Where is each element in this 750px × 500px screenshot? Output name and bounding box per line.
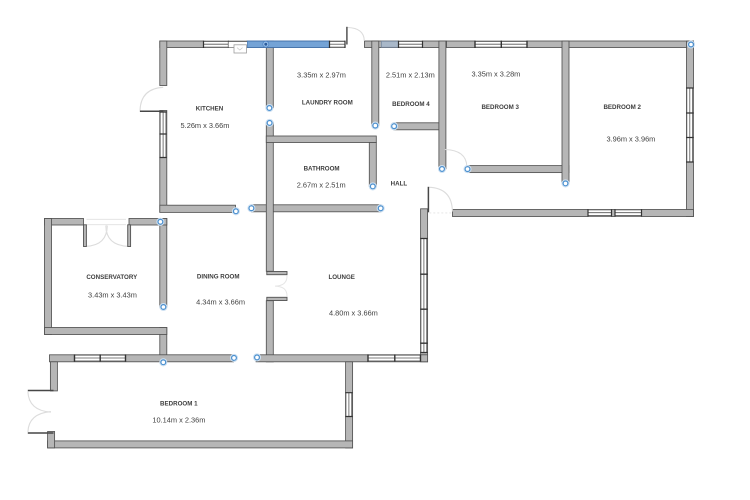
svg-text:CONSERVATORY: CONSERVATORY xyxy=(86,274,138,281)
svg-text:2.51m x 2.13m: 2.51m x 2.13m xyxy=(386,71,435,80)
svg-text:KITCHEN: KITCHEN xyxy=(196,105,224,112)
svg-text:3.96m x 3.96m: 3.96m x 3.96m xyxy=(606,135,655,144)
svg-text:3.43m x 3.43m: 3.43m x 3.43m xyxy=(88,291,137,300)
svg-text:3.35m x 3.28m: 3.35m x 3.28m xyxy=(471,70,520,79)
svg-text:LAUNDRY ROOM: LAUNDRY ROOM xyxy=(302,100,353,107)
svg-text:LOUNGE: LOUNGE xyxy=(328,274,354,281)
svg-text:2.67m x 2.51m: 2.67m x 2.51m xyxy=(297,180,346,189)
svg-text:4.80m x 3.66m: 4.80m x 3.66m xyxy=(329,309,378,318)
svg-text:BATHROOM: BATHROOM xyxy=(304,166,340,173)
svg-text:3.35m x 2.97m: 3.35m x 2.97m xyxy=(297,70,346,79)
svg-text:BEDROOM 1: BEDROOM 1 xyxy=(160,401,198,408)
svg-text:10.14m x 2.36m: 10.14m x 2.36m xyxy=(152,415,205,424)
svg-text:BEDROOM 3: BEDROOM 3 xyxy=(481,104,519,111)
svg-text:5.26m x 3.66m: 5.26m x 3.66m xyxy=(181,121,230,130)
svg-text:HALL: HALL xyxy=(391,181,408,188)
svg-text:BEDROOM 4: BEDROOM 4 xyxy=(392,101,430,108)
svg-text:DINING ROOM: DINING ROOM xyxy=(197,273,240,280)
svg-text:BEDROOM 2: BEDROOM 2 xyxy=(603,104,641,111)
svg-text:4.34m x 3.66m: 4.34m x 3.66m xyxy=(196,298,245,307)
